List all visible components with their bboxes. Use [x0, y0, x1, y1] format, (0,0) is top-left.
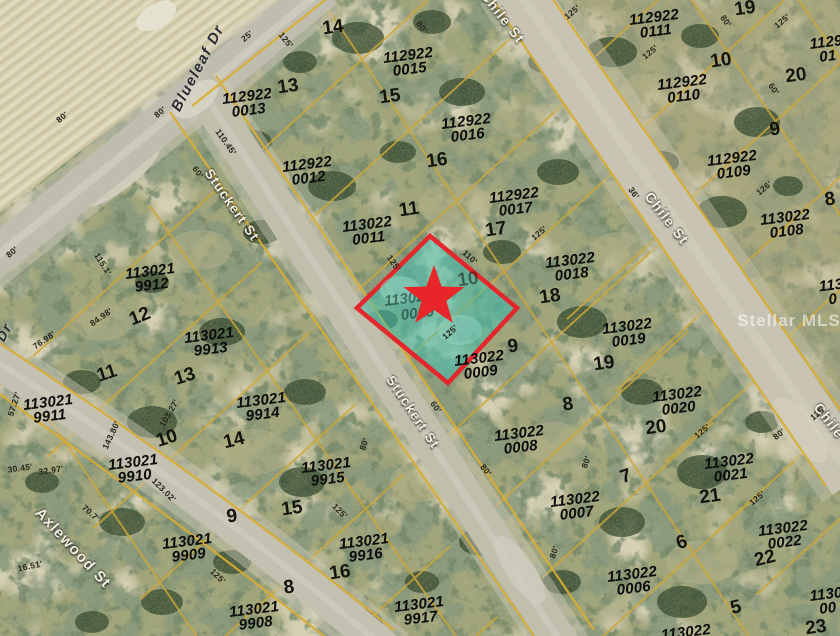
street-name-label: Blueleaf Dr: [168, 22, 228, 114]
lot-number: 13: [172, 363, 199, 390]
dimension-label: 125': [440, 322, 460, 341]
dimension-label: 110.45': [213, 127, 238, 157]
parcel-id-label: 1130220021: [703, 452, 756, 486]
lot-number: 16: [328, 561, 352, 586]
aerial-parcel-map: 113022 0010 1129220015112922001311292200…: [0, 0, 840, 636]
lot-number: 7: [618, 465, 635, 489]
lot-number: 19: [733, 0, 757, 21]
map-labels-layer: 1129220015112922001311292200121129220016…: [0, 0, 840, 636]
parcel-id-label: 1129220013: [221, 87, 274, 121]
parcel-id-label: 1129220012: [281, 155, 334, 189]
dimension-label: 125': [330, 501, 349, 520]
dimension-label: 80': [771, 426, 787, 442]
lot-number: 15: [280, 497, 304, 522]
parcel-id-label: 1129220109: [706, 149, 759, 183]
dimension-label: 76.98': [31, 329, 57, 352]
dimension-label: 60': [766, 81, 781, 97]
dimension-label: 115.1': [92, 251, 114, 277]
dimension-label: 80': [152, 104, 168, 120]
parcel-id-label: 1130219911: [22, 393, 75, 427]
lot-number: 14: [321, 16, 345, 41]
parcel-id-label: 1130220009: [453, 349, 506, 383]
dimension-label: 143.80': [100, 419, 122, 451]
dimension-label: 80': [54, 109, 70, 125]
street-name-label: Dr: [0, 320, 15, 344]
dimension-label: 125': [640, 43, 660, 62]
dimension-label: 80': [4, 244, 20, 260]
dimension-label: 80': [718, 13, 733, 29]
lot-number: 8: [823, 188, 837, 211]
dimension-label: 125': [747, 489, 767, 508]
parcel-id-label: 1130220006: [606, 565, 659, 599]
dimension-label: 80': [414, 19, 429, 35]
lot-number: 11: [398, 198, 421, 223]
lot-number: 17: [484, 218, 508, 243]
parcel-id-label: 1130219912: [124, 262, 177, 296]
parcel-id-label: 1129220016: [440, 112, 493, 146]
street-name-label: Chile St: [478, 0, 529, 46]
dimension-label: 125': [692, 422, 712, 441]
dimension-label: 30.45': [7, 461, 33, 474]
dimension-label: 70.7': [80, 503, 102, 524]
parcel-id-label: 1129220110: [656, 73, 709, 107]
dimension-label: 125': [385, 253, 403, 273]
lot-number: 5: [728, 596, 744, 620]
dimension-label: 125': [562, 3, 582, 22]
dimension-label: 123.02': [150, 476, 178, 504]
parcel-id-label: 1130219909: [161, 532, 214, 566]
dimension-label: 103.27': [157, 397, 181, 428]
parcel-id-label: 1129220111: [628, 8, 681, 42]
parcel-id-label: 1130220008: [493, 424, 546, 458]
lot-number: 12: [126, 303, 154, 331]
lot-number: 13: [276, 75, 300, 100]
dimension-label: 126': [754, 179, 774, 198]
lot-number: 9: [225, 505, 239, 528]
lot-number: 20: [644, 416, 668, 441]
dimension-label: 32.97': [38, 463, 64, 476]
parcel-id-label: 1129220015: [382, 46, 435, 80]
parcel-id-label: 1130219908: [228, 600, 281, 634]
dimension-label: 36': [626, 185, 641, 201]
lot-number: 16: [425, 149, 449, 174]
lot-number: 8: [561, 393, 575, 416]
parcel-id-label: 1130219915: [300, 456, 353, 490]
dimension-label: 57.27': [5, 391, 22, 418]
dimension-label: 80': [357, 436, 371, 451]
lot-number: 10: [709, 49, 733, 74]
parcel-id-label: 1130220007: [549, 490, 602, 524]
dimension-label: 60': [428, 399, 443, 415]
parcel-id-label: 112901: [809, 34, 840, 66]
lot-number: 11: [94, 360, 120, 387]
dimension-label: 80': [547, 544, 561, 559]
dimension-label: 125': [772, 12, 792, 31]
parcel-id-label: 1130220020: [651, 385, 704, 419]
lot-number: 10: [154, 425, 181, 452]
parcel-id-label: 1130219914: [235, 391, 288, 425]
lot-number: 10: [456, 268, 480, 293]
dimension-label: 125': [529, 224, 549, 243]
lot-number: 19: [592, 352, 616, 377]
lot-number: 18: [538, 285, 562, 310]
lot-number: 23: [804, 616, 828, 636]
watermark: Stellar MLS: [737, 311, 840, 331]
lot-number: 9: [768, 118, 782, 141]
dimension-label: 110': [460, 248, 479, 267]
parcel-id-label: 1130: [818, 278, 840, 309]
parcel-id-label: 113022: [660, 623, 711, 636]
parcel-id-label: 113000: [809, 586, 840, 618]
parcel-id-label: 1130220018: [544, 251, 597, 285]
parcel-id-label: 1129220017: [488, 186, 541, 220]
street-name-label: Chile St: [811, 400, 840, 458]
lot-number: 8: [282, 576, 296, 599]
dimension-label: 25': [239, 28, 255, 44]
lot-number: 9: [506, 335, 520, 358]
parcel-id-label: 1130219917: [393, 595, 446, 629]
lot-number: 15: [378, 85, 402, 110]
lot-number: 14: [221, 428, 247, 454]
street-name-label: Axlewood St: [32, 504, 115, 591]
dimension-label: 80': [478, 462, 494, 478]
dimension-label: 80': [579, 454, 593, 469]
dimension-label: 125': [277, 30, 296, 50]
lot-number: 6: [674, 531, 691, 555]
parcel-id-label: 1130219913: [183, 326, 236, 360]
lot-number: 20: [784, 64, 808, 89]
street-name-label: Stuckert St: [202, 166, 263, 244]
dimension-label: 16.51': [17, 559, 44, 574]
parcel-id-label: 1130220019: [601, 317, 654, 351]
parcel-id-label: 1130220011: [341, 215, 394, 249]
street-name-label: Chile St: [642, 189, 693, 247]
parcel-id-label: 1130220108: [759, 208, 812, 242]
dimension-label: 125': [208, 566, 227, 585]
lot-number: 21: [698, 485, 722, 510]
dimension-label: 84.98': [88, 306, 114, 329]
